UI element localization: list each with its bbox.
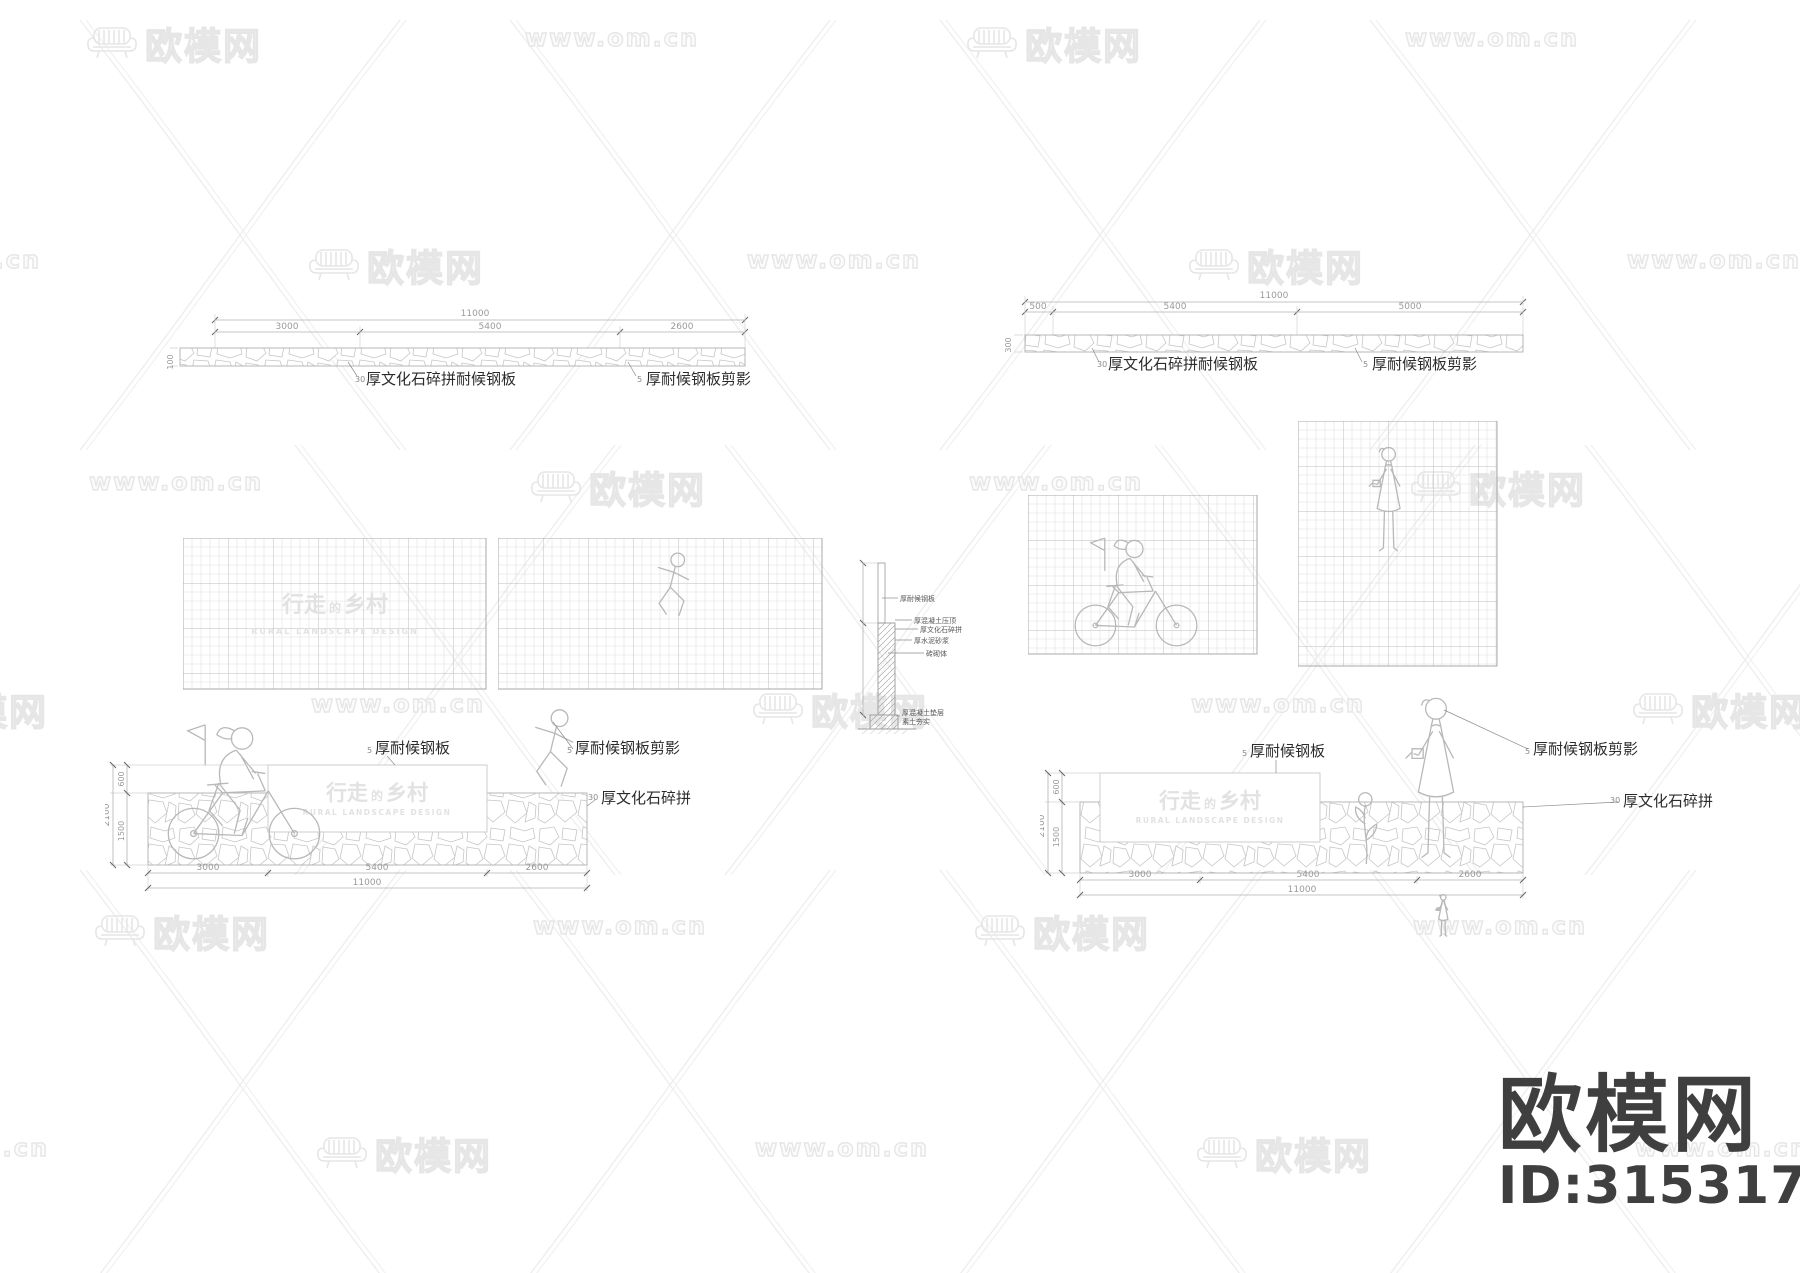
label-prefix: 30 — [355, 375, 365, 384]
section-masonry-wall — [878, 623, 895, 715]
svg-text:1500: 1500 — [117, 821, 126, 841]
section-footing — [870, 715, 898, 729]
svg-text:1500: 1500 — [1052, 827, 1061, 847]
label-silhouette: 厚耐候钢板剪影 — [1372, 355, 1477, 373]
svg-text:11000: 11000 — [353, 878, 382, 888]
svg-text:5: 5 — [1242, 749, 1247, 758]
label-stone-steel: 厚文化石碎拼耐候钢板 — [366, 370, 516, 388]
svg-text:600: 600 — [1052, 779, 1061, 794]
dim-total: 11000 — [461, 309, 490, 319]
watermark-site: www.om.cn — [0, 246, 41, 274]
svg-text:2600: 2600 — [526, 863, 549, 873]
sofa-icon — [93, 913, 147, 949]
svg-text:2600: 2600 — [1459, 870, 1482, 880]
dim-seg1: 500 — [1029, 302, 1046, 312]
grid-panel-bicycle — [1028, 495, 1258, 655]
sofa-icon — [965, 25, 1019, 61]
sofa-icon — [529, 469, 583, 505]
sofa-icon — [1195, 1135, 1249, 1171]
dim-total: 11000 — [1260, 291, 1289, 301]
svg-text:5: 5 — [367, 746, 372, 755]
svg-text:2100: 2100 — [105, 803, 112, 826]
watermark-site: www.om.cn — [969, 468, 1143, 496]
plan-right-stone-strip — [1025, 335, 1523, 352]
label-steel: 厚耐候钢板 — [375, 739, 450, 757]
plan-left-dimensions: 11000 3000 5400 2600 — [212, 309, 748, 348]
watermark-brand: 欧模网 — [1187, 238, 1364, 292]
svg-text:5: 5 — [1525, 747, 1530, 756]
dim-seg2: 5400 — [1164, 302, 1187, 312]
label-stone: 厚文化石碎拼 — [1623, 792, 1713, 810]
watermark-site: www.om.cn — [755, 1134, 929, 1162]
elevation-right: 行走的乡村 RURAL LANDSCAPE DESIGN 2100 600 15… — [1040, 650, 1780, 960]
watermark-brand: 欧模网 — [0, 682, 48, 736]
svg-text:30: 30 — [1610, 796, 1620, 805]
label-prefix: 5 — [637, 375, 642, 384]
svg-text:3000: 3000 — [1129, 870, 1152, 880]
watermark-brand: 欧模网 — [85, 16, 262, 70]
svg-text:厚文化石碎拼: 厚文化石碎拼 — [920, 625, 962, 634]
plan-view-left: 11000 3000 5400 2600 100 30 厚文化石碎拼耐候钢板 5… — [100, 298, 840, 398]
elevation-left: 行走的乡村 RURAL LANDSCAPE DESIGN 2100 600 15… — [105, 650, 805, 900]
watermark-site: www.om.cn — [1405, 24, 1579, 52]
section-dimension — [860, 560, 878, 718]
dim-seg3: 5000 — [1399, 302, 1422, 312]
section-steel-plate — [878, 563, 885, 623]
dim-seg2: 5400 — [479, 322, 502, 332]
watermark-brand: 欧模网 — [315, 1126, 492, 1180]
brand-id-text: ID:3153174 — [1498, 1159, 1800, 1213]
svg-text:300: 300 — [1004, 337, 1013, 352]
watermark-brand: 欧模网 — [529, 460, 706, 514]
watermark-site: www.om.cn — [1627, 246, 1800, 274]
watermark-site: www.om.cn — [0, 1134, 49, 1162]
svg-text:100: 100 — [166, 354, 175, 369]
cad-sheet: 欧模网www.om.cn欧模网www.om.cnwww.om.cn欧模网www.… — [0, 0, 1800, 1273]
svg-text:600: 600 — [117, 771, 126, 786]
svg-text:30: 30 — [588, 793, 598, 802]
watermark-site: www.om.cn — [533, 912, 707, 940]
svg-text:厚耐候钢板: 厚耐候钢板 — [900, 594, 935, 603]
small-girl-silhouette — [1435, 895, 1448, 937]
svg-text:5400: 5400 — [366, 863, 389, 873]
plan-view-right: 11000 500 5400 5000 300 30 厚文化石碎拼耐候钢板 5 … — [1000, 288, 1580, 388]
dim-seg3: 2600 — [671, 322, 694, 332]
sofa-icon — [307, 247, 361, 283]
label-silhouette: 厚耐候钢板剪影 — [646, 370, 751, 388]
label-silhouette: 厚耐候钢板剪影 — [575, 739, 680, 757]
watermark-brand: 欧模网 — [93, 904, 270, 958]
svg-text:11000: 11000 — [1288, 885, 1317, 895]
watermark-brand: 欧模网 — [965, 16, 1142, 70]
watermark-brand: 欧模网 — [307, 238, 484, 292]
svg-text:3000: 3000 — [197, 863, 220, 873]
wall-section-detail: 厚耐候钢板 厚混凝土压顶 厚文化石碎拼 厚水泥砂浆 砖砌体 厚混凝土垫层 素土夯… — [838, 538, 1020, 743]
sign-subtitle: RURAL LANDSCAPE DESIGN — [1136, 816, 1285, 825]
horizontal-dimensions: 3000 5400 2600 11000 — [145, 863, 590, 891]
plan-right-dimensions: 11000 500 5400 5000 — [1022, 291, 1526, 335]
dim-seg1: 3000 — [276, 322, 299, 332]
svg-text:5: 5 — [567, 746, 572, 755]
watermark-brand: 欧模网 — [1195, 1126, 1372, 1180]
svg-text:素土夯实: 素土夯实 — [902, 717, 930, 726]
plan-left-thickness-dim: 100 — [166, 348, 178, 370]
sofa-icon — [1187, 247, 1241, 283]
sign-subtitle: RURAL LANDSCAPE DESIGN — [303, 808, 452, 817]
label-prefix: 5 — [1363, 360, 1368, 369]
plan-right-thickness-dim: 300 — [1004, 335, 1023, 353]
watermark-site: www.om.cn — [525, 24, 699, 52]
brand-logo-text: 欧模网 — [1498, 1072, 1800, 1159]
sofa-icon — [85, 25, 139, 61]
faint-sign-subtitle: RURAL LANDSCAPE DESIGN — [251, 627, 419, 636]
svg-text:砖砌体: 砖砌体 — [926, 649, 947, 658]
horizontal-dimensions: 3000 5400 2600 11000 — [1077, 870, 1526, 898]
label-stone-steel: 厚文化石碎拼耐候钢板 — [1108, 355, 1258, 373]
sofa-icon — [315, 1135, 369, 1171]
svg-text:厚混凝土压顶: 厚混凝土压顶 — [914, 616, 956, 625]
plan-left-stone-strip — [180, 348, 745, 366]
label-prefix: 30 — [1097, 360, 1107, 369]
svg-text:厚混凝土垫层: 厚混凝土垫层 — [902, 708, 944, 717]
svg-text:厚水泥砂浆: 厚水泥砂浆 — [914, 636, 949, 645]
grid-panel-girl — [1298, 421, 1498, 667]
watermark-site: www.om.cn — [747, 246, 921, 274]
watermark-site: www.om.cn — [89, 468, 263, 496]
svg-text:5400: 5400 — [1297, 870, 1320, 880]
sofa-icon — [973, 913, 1027, 949]
label-silhouette: 厚耐候钢板剪影 — [1533, 740, 1638, 758]
label-steel: 厚耐候钢板 — [1250, 742, 1325, 760]
brand-footer: 欧模网 ID:3153174 — [1498, 1072, 1800, 1213]
label-stone: 厚文化石碎拼 — [601, 789, 691, 807]
svg-text:2100: 2100 — [1040, 814, 1047, 837]
